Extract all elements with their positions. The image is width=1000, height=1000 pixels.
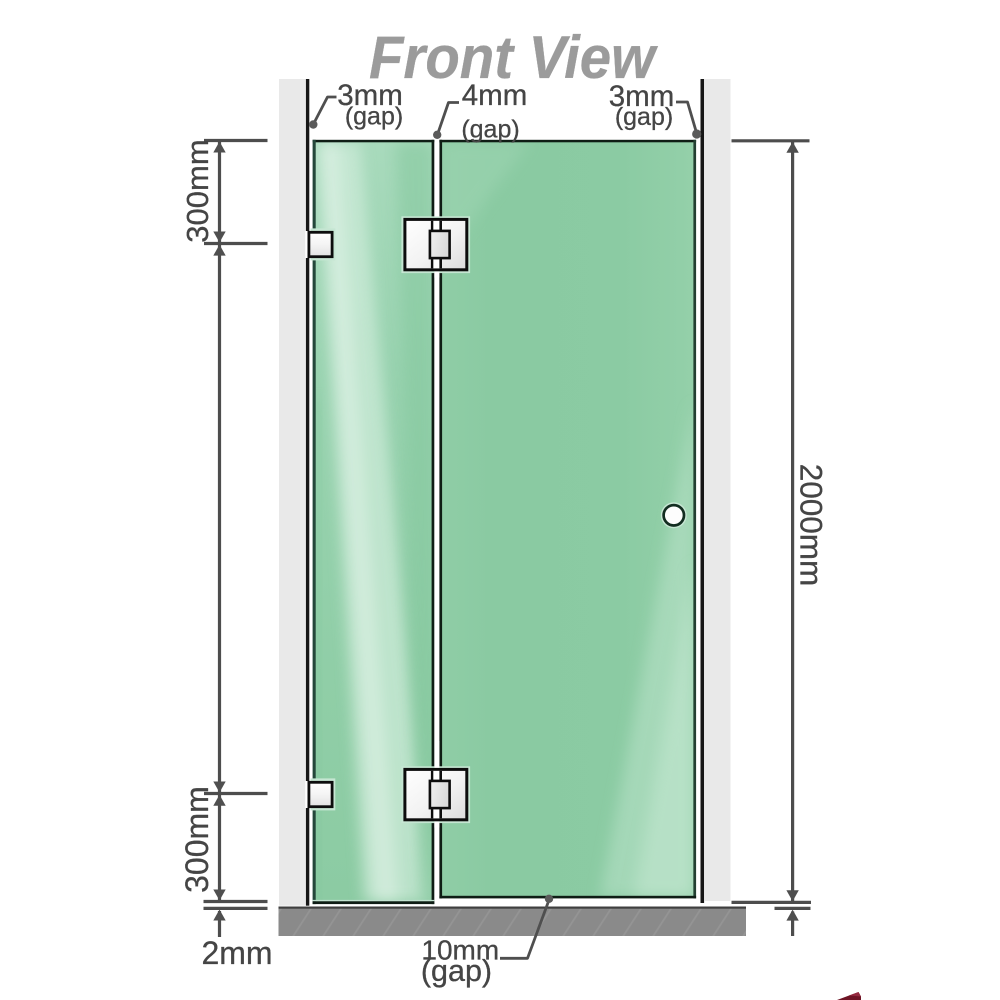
svg-text:(gap): (gap) <box>615 103 673 131</box>
svg-text:4mm: 4mm <box>462 79 528 112</box>
svg-text:(gap): (gap) <box>421 954 492 988</box>
svg-text:(gap): (gap) <box>461 116 519 144</box>
svg-text:300mm: 300mm <box>179 786 215 893</box>
svg-text:2000mm: 2000mm <box>794 464 830 587</box>
svg-text:300mm: 300mm <box>180 139 215 242</box>
svg-text:(gap): (gap) <box>345 103 403 131</box>
svg-text:2mm: 2mm <box>201 935 272 971</box>
